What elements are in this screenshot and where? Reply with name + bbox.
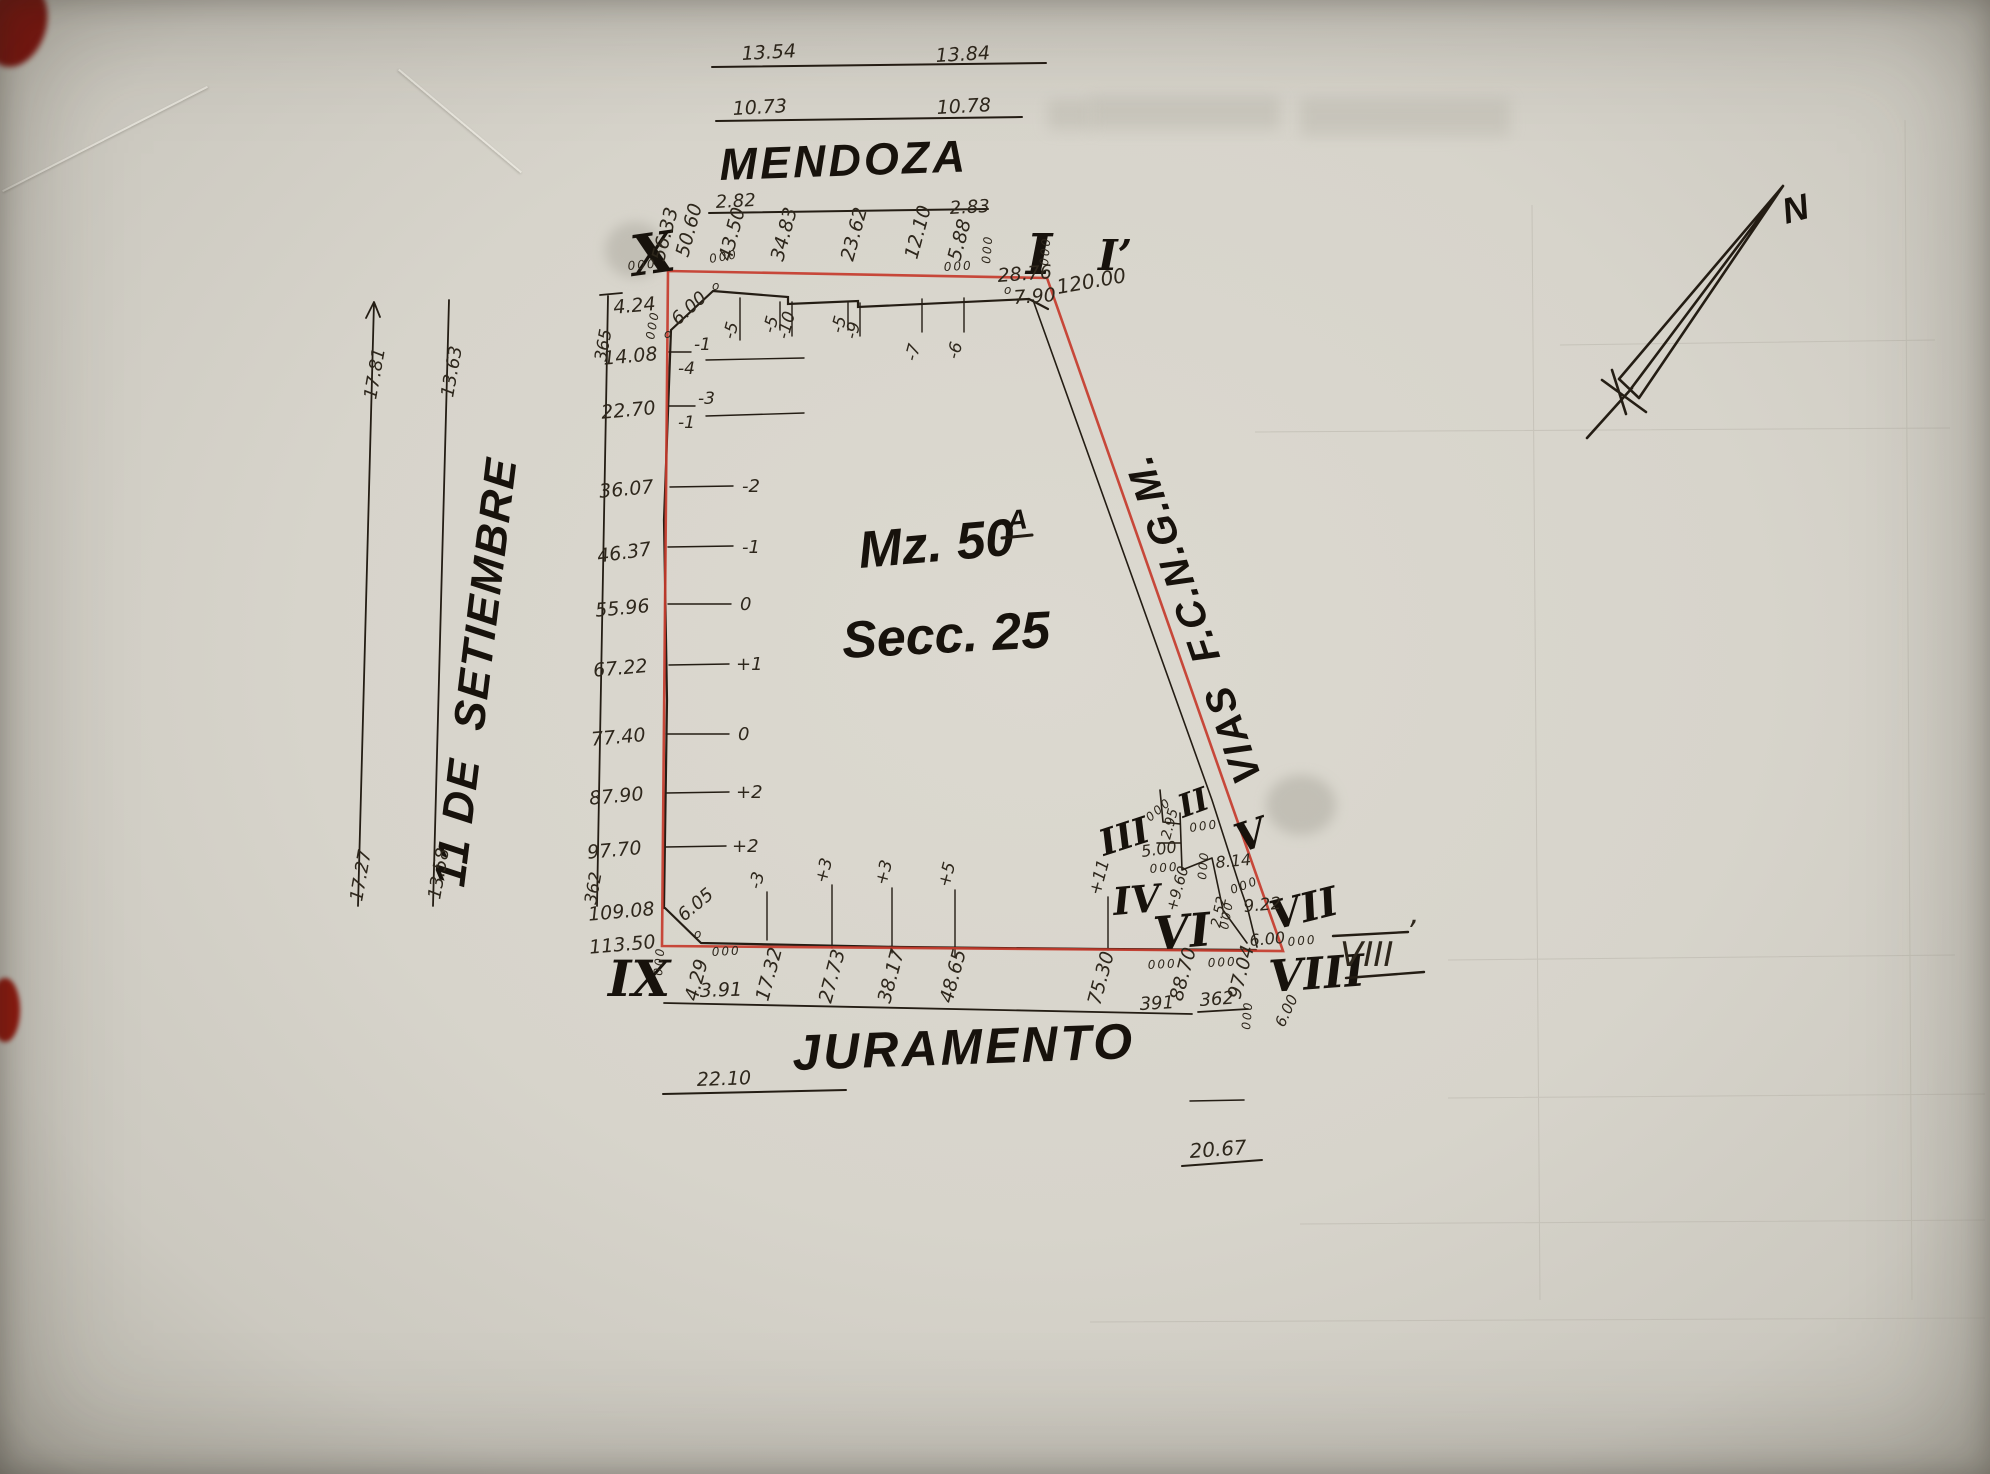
survey-mark: 000: [1037, 236, 1053, 266]
left-offset: -3: [698, 389, 715, 409]
plan-drawing: N MENDOZA JURAMENTO 11 DE SETIEMBRE VIAS…: [0, 0, 1990, 1474]
street-name-mendoza: MENDOZA: [719, 130, 969, 190]
survey-mark: 000: [1207, 955, 1237, 970]
dim-setiembre-inner-top: 13.63: [437, 344, 467, 398]
dim-mendoza-mid-right: 10.78: [936, 94, 991, 119]
survey-point: o: [1004, 283, 1013, 297]
bottom-ref-a: 391: [1139, 992, 1174, 1015]
dim-tr-length: 120.00: [1055, 263, 1128, 299]
left-offset: 0: [738, 724, 749, 745]
dim-setiembre-outer-bottom: 17.27: [346, 848, 376, 903]
dim-juramento-right: 20.67: [1189, 1135, 1248, 1163]
top-station: 5.88: [944, 217, 976, 264]
corner-VIII-prime: VIII: [1340, 935, 1393, 975]
dim-cluster-814: 8.14: [1215, 850, 1252, 872]
left-offset: 0: [740, 594, 751, 615]
survey-point: o: [712, 279, 721, 293]
survey-mark: 000: [1149, 860, 1179, 876]
bottom-offset: -3: [746, 870, 770, 892]
dim-cluster-600a: 6.00: [1249, 928, 1286, 950]
north-arrow: [1587, 186, 1783, 438]
survey-mark: 000: [1228, 874, 1260, 897]
survey-mark: 000: [1195, 850, 1211, 880]
block-label-sup: A: [1005, 503, 1029, 536]
street-name-setiembre: 11 DE SETIEMBRE: [425, 454, 526, 889]
bottom-station: 48.65: [936, 947, 971, 1005]
left-station: 22.70: [600, 397, 656, 424]
survey-mark: 000: [627, 257, 657, 273]
dim-tl-bevel: 6.00: [667, 287, 711, 329]
section-label: Secc. 25: [841, 601, 1053, 670]
survey-point: o: [694, 927, 703, 941]
dim-setiembre-outer-top: 17.81: [360, 346, 390, 400]
left-ref-bottom: 362: [581, 870, 606, 905]
survey-mark: 000: [943, 259, 973, 274]
dim-mendoza-far-left: 13.54: [741, 40, 796, 65]
bottom-station: 38.17: [874, 947, 909, 1005]
bottom-offset: +11: [1086, 857, 1115, 897]
dim-mendoza-mid-left: 10.73: [732, 95, 787, 120]
survey-mark: 000: [1287, 933, 1317, 949]
dim-tr-drop: 7.90: [1013, 284, 1057, 309]
top-station: 23.62: [837, 205, 872, 263]
left-station: 87.90: [588, 783, 644, 810]
north-label: N: [1777, 185, 1814, 232]
dim-cluster-922: 9.22: [1243, 894, 1282, 917]
top-offset: -7: [902, 342, 926, 364]
left-station: 67.22: [592, 655, 648, 682]
bottom-offset: +3: [812, 856, 838, 885]
scanned-survey-plan: N MENDOZA JURAMENTO 11 DE SETIEMBRE VIAS…: [0, 0, 1990, 1474]
bottom-offset: +3: [872, 858, 898, 887]
top-offset: -9: [842, 320, 866, 342]
bottom-station: 17.32: [752, 945, 787, 1003]
bottom-station: 27.73: [815, 947, 850, 1005]
top-station: 12.10: [901, 203, 936, 261]
left-station: 36.07: [598, 476, 654, 503]
dim-juramento-mid: 22.10: [696, 1067, 751, 1091]
left-station: 55.96: [594, 595, 650, 622]
left-offset: -1: [694, 335, 711, 355]
survey-point: o: [664, 327, 673, 341]
bottom-ref-b: 362: [1199, 988, 1235, 1011]
left-station: 97.70: [586, 837, 642, 864]
survey-mark: 000: [1239, 1000, 1255, 1030]
top-offset: -10: [774, 309, 801, 341]
left-offset: +2: [732, 836, 759, 857]
left-offset: -1: [678, 413, 695, 433]
survey-mark: 000: [1188, 817, 1219, 835]
left-offset: +2: [736, 782, 763, 803]
juramento-2210-line: [663, 1090, 846, 1094]
left-station: 77.40: [590, 724, 646, 751]
survey-mark: 000: [1147, 957, 1177, 972]
left-offset: +1: [736, 654, 763, 675]
dim-mendoza-far-right: 13.84: [935, 42, 990, 67]
survey-mark: 000: [979, 234, 995, 264]
juramento-reference-line: [664, 1003, 1192, 1014]
top-offset: -6: [944, 340, 968, 362]
left-offset: -2: [742, 476, 760, 497]
left-offset: -1: [742, 537, 760, 558]
block-label: Mz. 50: [856, 509, 1017, 580]
street-name-juramento: JURAMENTO: [791, 1013, 1136, 1081]
survey-mark: 000: [651, 946, 667, 976]
dim-mendoza-near-right: 2.83: [949, 196, 990, 219]
top-station: 34.83: [767, 205, 802, 263]
dim-bl-bevel: 6.05: [674, 884, 718, 926]
survey-mark: 000: [711, 944, 741, 959]
street-name-railway: VIAS F.C.N.G.M.: [1116, 449, 1270, 790]
stray-rule: [1190, 1100, 1244, 1101]
left-offset: -4: [678, 359, 695, 379]
bottom-station: 75.30: [1084, 949, 1119, 1007]
bottom-offset: +5: [935, 860, 961, 889]
